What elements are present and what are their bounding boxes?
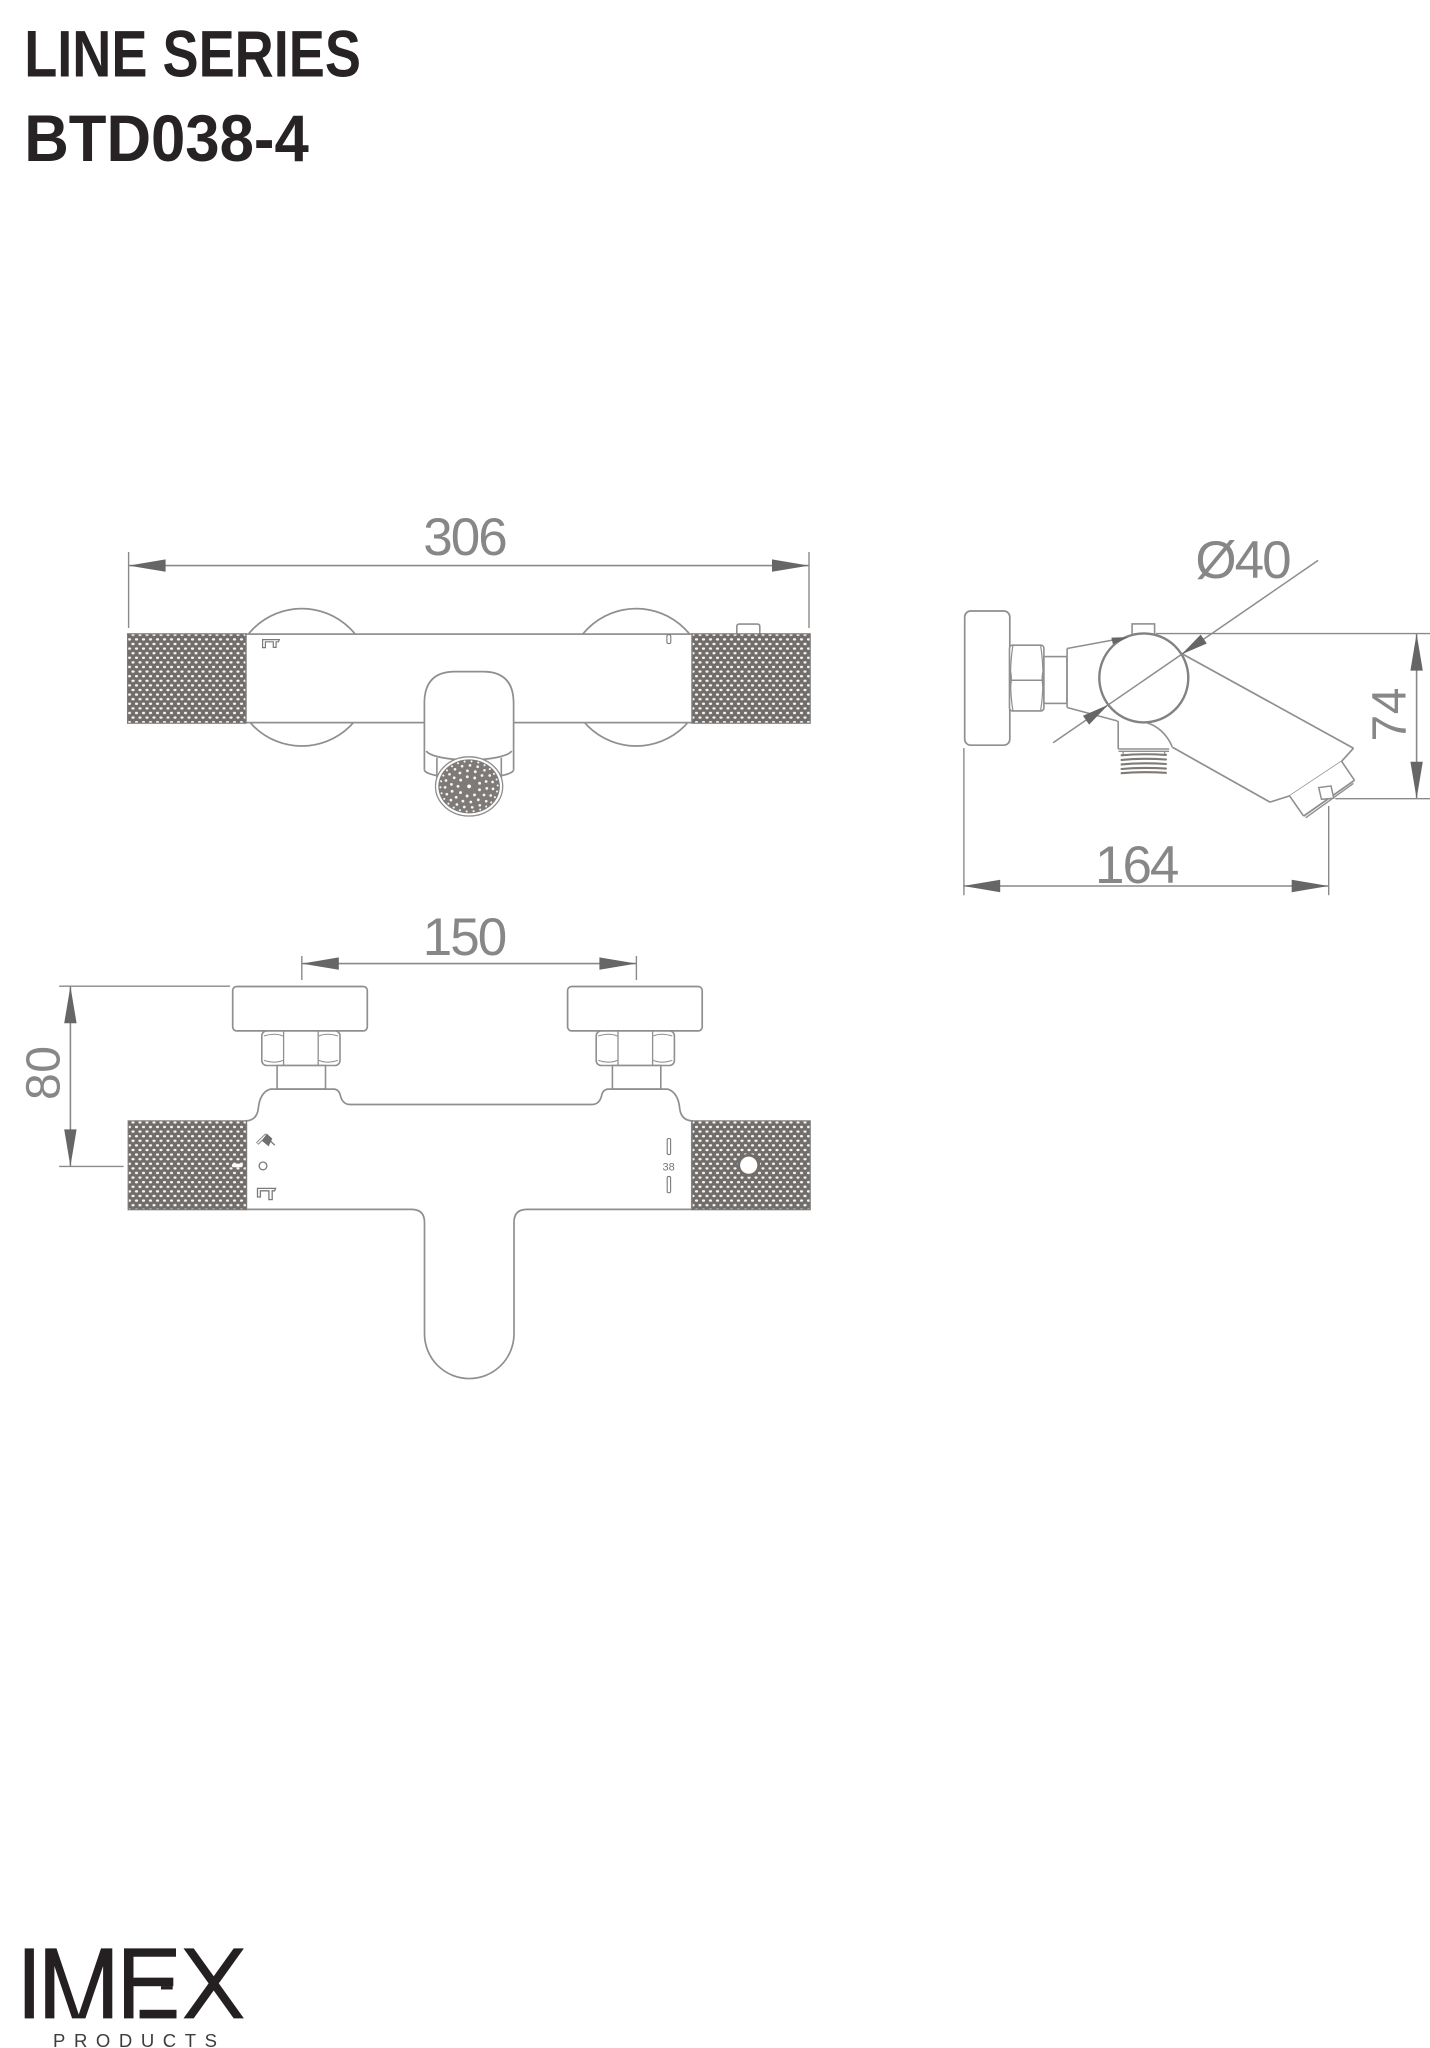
svg-text:74: 74	[1364, 687, 1417, 741]
svg-text:Ø40: Ø40	[1195, 531, 1290, 590]
svg-text:80: 80	[18, 1046, 71, 1100]
svg-text:LINE SERIES: LINE SERIES	[24, 16, 361, 90]
svg-text:38: 38	[662, 1162, 674, 1174]
svg-text:164: 164	[1095, 836, 1178, 895]
svg-text:306: 306	[423, 508, 506, 567]
svg-text:BTD038-4: BTD038-4	[24, 101, 309, 175]
svg-text:PRODUCTS: PRODUCTS	[53, 2030, 226, 2048]
svg-text:150: 150	[423, 908, 506, 967]
